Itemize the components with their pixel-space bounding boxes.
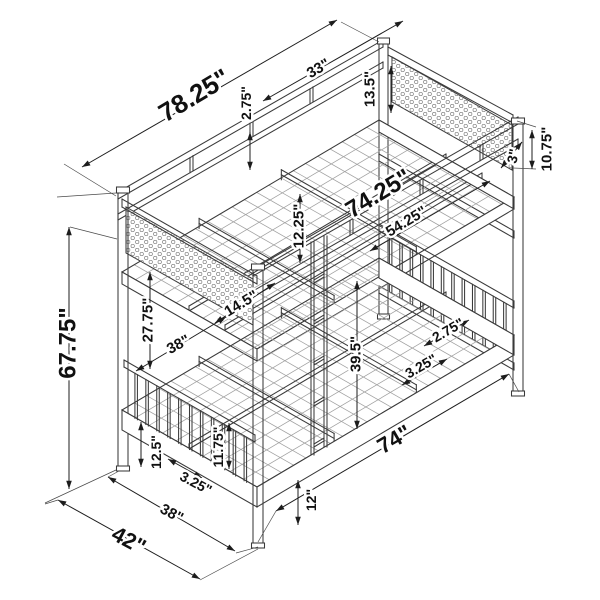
dim-3: 3" [504,147,523,164]
dim-12-25: 12.25" [290,204,307,249]
diagram-canvas: 78.25"33"2.75"13.5"10.75"3"74.25"54.25"1… [0,0,600,600]
dim-10-75: 10.75" [538,127,555,172]
dim-33-line [263,21,403,101]
dim-13-5: 13.5" [361,71,378,107]
dim-12: 12" [303,489,319,511]
dim-12-5: 12.5" [148,435,164,469]
dim-39-5: 39.5" [347,336,364,372]
dim-67-75: 67.75" [54,307,81,378]
dim-3-25-right: 3.25" [402,351,439,382]
bunk-bed-dimension-diagram: 78.25"33"2.75"13.5"10.75"3"74.25"54.25"1… [0,0,600,600]
dim-38-upper: 38" [164,332,193,358]
dim-27-75: 27.75" [139,298,156,343]
dim-38-bottom: 38" [157,501,186,527]
dim-42: 42" [108,521,151,559]
dim-11-75: 11.75" [210,427,226,468]
dim-78-25: 78.25" [153,62,235,128]
dim-2-75-top: 2.75" [238,86,254,120]
